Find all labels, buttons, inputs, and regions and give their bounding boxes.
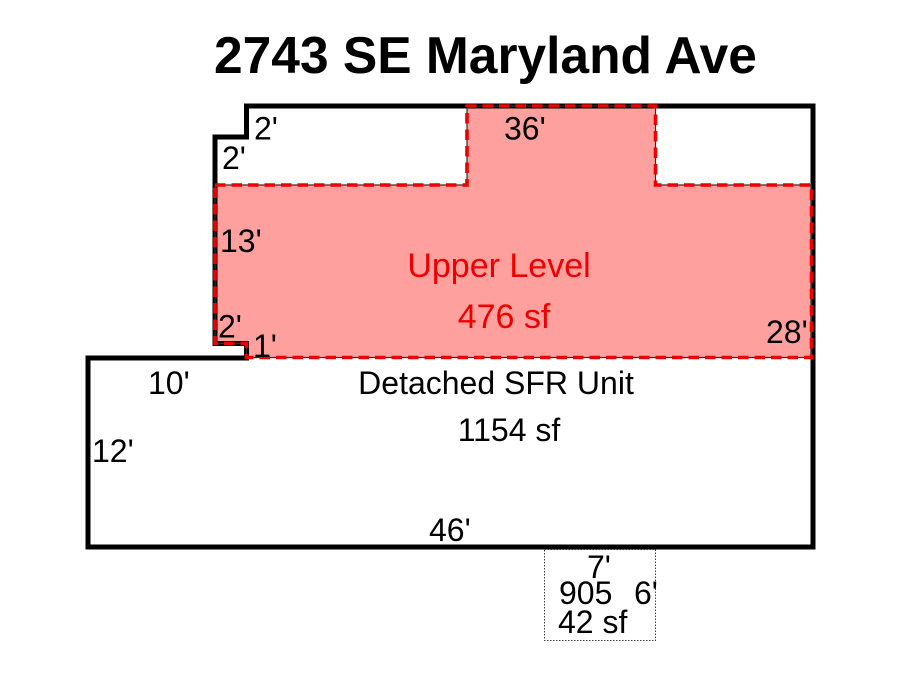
svg-text:12': 12' bbox=[92, 433, 134, 469]
svg-text:1': 1' bbox=[253, 328, 277, 364]
svg-text:46': 46' bbox=[429, 512, 471, 548]
svg-text:Detached SFR Unit: Detached SFR Unit bbox=[358, 365, 634, 401]
svg-text:2': 2' bbox=[254, 111, 278, 147]
svg-text:10': 10' bbox=[148, 365, 190, 401]
svg-text:Upper Level: Upper Level bbox=[407, 247, 590, 285]
svg-text:42 sf: 42 sf bbox=[558, 604, 627, 640]
svg-text:1154 sf: 1154 sf bbox=[458, 412, 561, 448]
svg-text:2743 SE Maryland Ave: 2743 SE Maryland Ave bbox=[214, 26, 757, 84]
svg-text:2': 2' bbox=[218, 309, 242, 345]
svg-text:36': 36' bbox=[504, 111, 546, 147]
svg-text:2': 2' bbox=[222, 140, 246, 176]
svg-text:13': 13' bbox=[220, 223, 262, 259]
svg-text:476 sf: 476 sf bbox=[458, 298, 551, 336]
svg-text:28': 28' bbox=[766, 314, 808, 350]
svg-text:6': 6' bbox=[634, 575, 658, 611]
